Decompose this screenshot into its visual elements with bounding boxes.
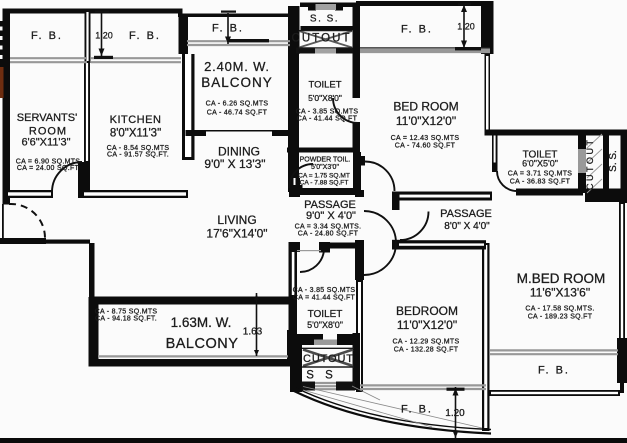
svg-text:S S: S S [306,370,337,382]
svg-text:CA - 8.75 SQ.MTS: CA - 8.75 SQ.MTS [95,309,158,316]
svg-text:TOILET: TOILET [308,80,341,91]
svg-text:1.63M. W.: 1.63M. W. [171,315,232,330]
svg-text:CA - 17.58 SQ.MTS.: CA - 17.58 SQ.MTS. [525,306,594,313]
svg-text:BED ROOM: BED ROOM [393,100,458,114]
svg-text:CA = 12.43 SQ.MTS: CA = 12.43 SQ.MTS [391,135,460,142]
svg-text:KITCHEN: KITCHEN [110,114,162,126]
svg-text:1.20: 1.20 [457,22,475,32]
svg-text:5'0"X8'0": 5'0"X8'0" [307,320,343,330]
svg-text:8'0" X 4'0": 8'0" X 4'0" [444,221,490,232]
svg-text:1.20: 1.20 [95,31,113,41]
svg-text:9'0" X 13'3": 9'0" X 13'3" [204,157,265,171]
svg-text:F. B.: F. B. [129,30,161,42]
svg-text:CA - 41.44 SQ.FT: CA - 41.44 SQ.FT [297,116,358,123]
svg-text:M.BED ROOM: M.BED ROOM [517,271,606,286]
svg-text:17'6"X14'0": 17'6"X14'0" [206,227,267,241]
svg-text:11'0"X12'0": 11'0"X12'0" [397,318,457,332]
svg-text:S. S.: S. S. [310,14,339,25]
svg-text:CA - 189.23 SQ.FT: CA - 189.23 SQ.FT [528,314,593,321]
svg-text:CA - 74.60 SQ.FT: CA - 74.60 SQ.FT [395,143,456,150]
svg-text:11'6"X13'6": 11'6"X13'6" [530,286,590,300]
svg-text:CA - 3.85 SQ.MTS: CA - 3.85 SQ.MTS [296,109,359,116]
svg-text:BALCONY: BALCONY [201,75,273,90]
svg-text:F. B.: F. B. [212,23,244,35]
svg-text:6'6"X11'3": 6'6"X11'3" [21,137,70,149]
svg-text:CA = 41.44 SQ.FT: CA = 41.44 SQ.FT [293,295,356,302]
svg-text:CUTOUT: CUTOUT [303,353,353,365]
svg-text:F. B.: F. B. [401,404,433,416]
svg-text:CA - 36.83 SQ.FT: CA - 36.83 SQ.FT [510,179,571,186]
svg-text:CA - 94.18 SQ.FT.: CA - 94.18 SQ.FT. [95,316,157,323]
svg-text:CA - 3.85 SQ.MTS: CA - 3.85 SQ.MTS [293,287,356,294]
svg-text:TOILET: TOILET [308,309,343,320]
svg-text:CA - 24.80 SQ.FT: CA - 24.80 SQ.FT [298,231,359,238]
svg-text:CA - 91.57 SQ.FT.: CA - 91.57 SQ.FT. [107,152,169,159]
svg-text:BALCONY: BALCONY [166,336,239,352]
svg-text:9'0" X 4'0": 9'0" X 4'0" [306,210,356,222]
svg-text:CA - 7.88 SQ.FT: CA - 7.88 SQ.FT [300,180,349,187]
svg-text:CA - 132.28 SQ.FT: CA - 132.28 SQ.FT [394,347,459,354]
svg-text:CA - 46.74 SQ.FT: CA - 46.74 SQ.FT [207,110,268,117]
svg-text:1.63: 1.63 [243,327,263,338]
svg-text:CA = 3.71 SQ.MTS: CA = 3.71 SQ.MTS [508,171,573,178]
svg-text:8'0"X11'3": 8'0"X11'3" [110,128,161,140]
svg-text:5'0"X3'0": 5'0"X3'0" [311,164,339,171]
svg-text:S. S.: S. S. [608,150,619,172]
svg-text:CA - 6.26 SQ.MTS: CA - 6.26 SQ.MTS [206,101,269,108]
svg-text:CA = 3.34 SQ.MTS.: CA = 3.34 SQ.MTS. [295,224,362,231]
svg-text:CA - 12.29 SQ.MTS: CA - 12.29 SQ.MTS [393,339,460,346]
svg-text:LIVING: LIVING [217,213,256,227]
svg-text:BEDROOM: BEDROOM [396,304,458,318]
svg-text:CA = 1.75 SQ.MT: CA = 1.75 SQ.MT [298,173,350,180]
svg-text:6'0"X5'0": 6'0"X5'0" [522,159,558,169]
svg-text:F. B.: F. B. [401,24,433,36]
svg-text:11'0"X12'0": 11'0"X12'0" [396,114,456,128]
svg-text:F. B.: F. B. [538,365,570,377]
svg-text:SERVANTS': SERVANTS' [17,112,77,124]
svg-text:PASSAGE: PASSAGE [440,208,492,220]
svg-text:POWDER TOIL.: POWDER TOIL. [300,157,351,164]
svg-text:5'0"X8'0": 5'0"X8'0" [308,93,342,103]
svg-text:1.20: 1.20 [445,408,465,419]
svg-text:CA = 24.00 SQ.FT: CA = 24.00 SQ.FT [17,165,80,172]
svg-text:2.40M. W.: 2.40M. W. [204,59,270,74]
svg-text:F. B.: F. B. [31,30,63,42]
